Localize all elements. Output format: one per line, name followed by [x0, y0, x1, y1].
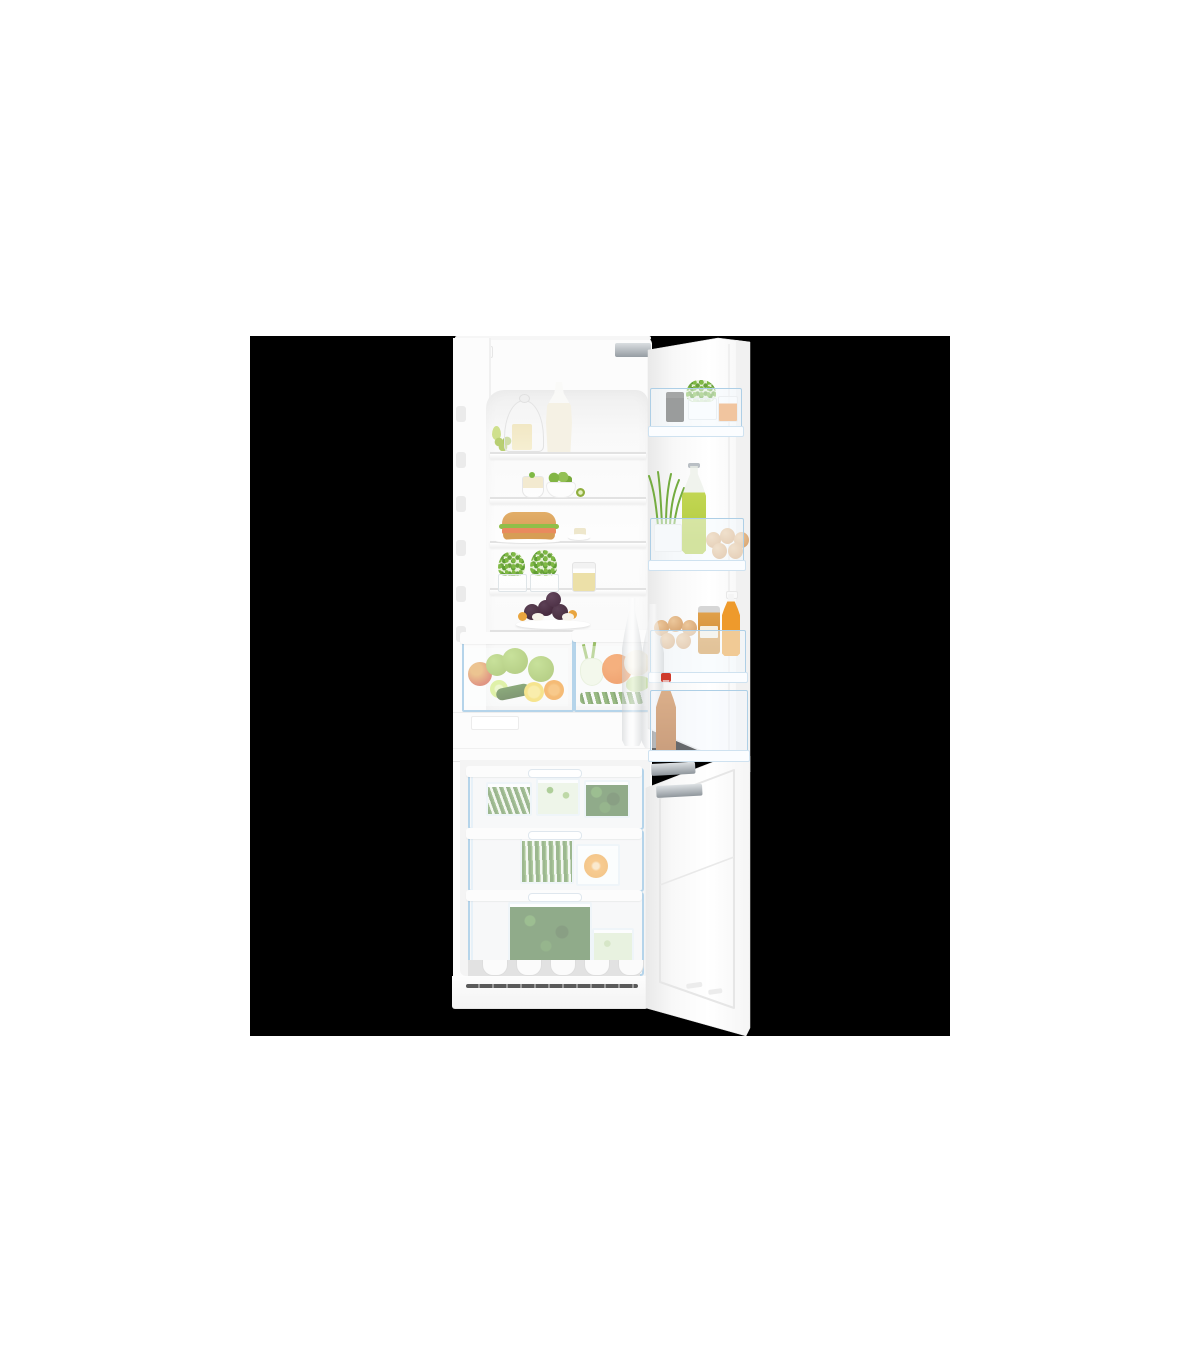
door-hinge-upper [651, 762, 696, 776]
door-bin-4 [650, 690, 748, 758]
door-bin-4-floor [648, 750, 750, 762]
door-bin-2-floor [648, 560, 746, 571]
open-doors-layer [250, 336, 950, 1036]
door-hinge-lower [656, 784, 703, 798]
page-background [0, 0, 1200, 1372]
product-image [250, 336, 950, 1036]
door-bin-1-floor [648, 426, 744, 437]
